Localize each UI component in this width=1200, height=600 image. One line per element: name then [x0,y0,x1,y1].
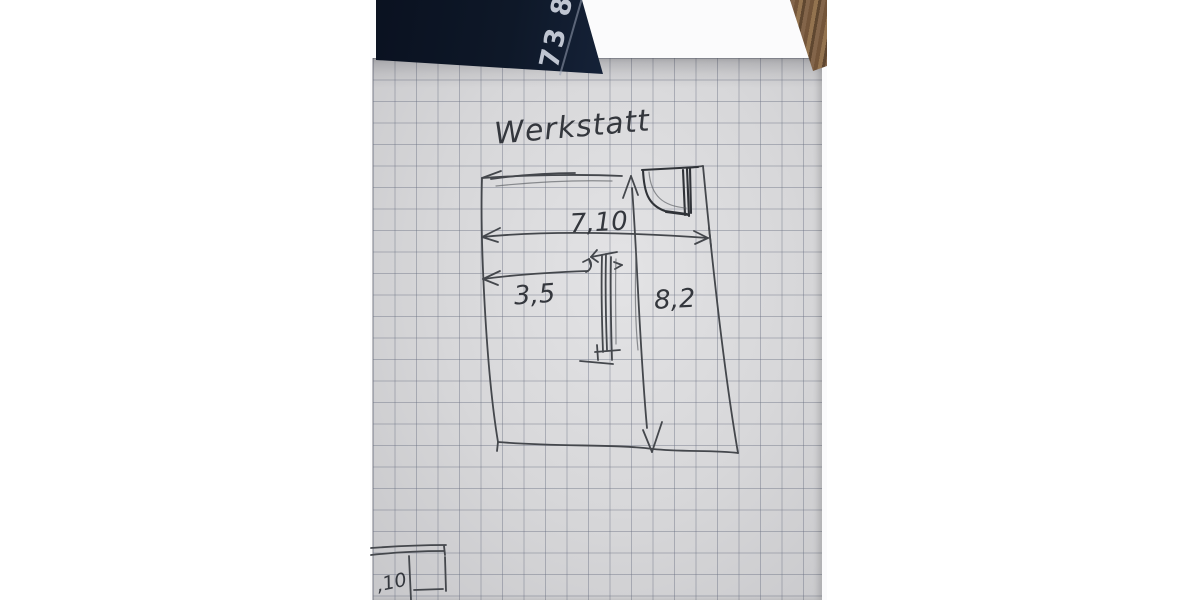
photo: 73 8 Werkstatt [370,0,827,600]
sketch-svg: Werkstatt [370,0,827,600]
interior-door [580,250,622,364]
dim-label-total-width: 7,10 [569,206,628,239]
dim-label-partial-width: 3,5 [513,279,556,312]
sketch-title: Werkstatt [493,103,652,151]
page-background: 73 8 Werkstatt [0,0,1200,600]
entry-door [642,167,698,216]
corner-fragment-label: ,10 [375,569,409,597]
dim-label-height: 8,2 [653,284,696,316]
